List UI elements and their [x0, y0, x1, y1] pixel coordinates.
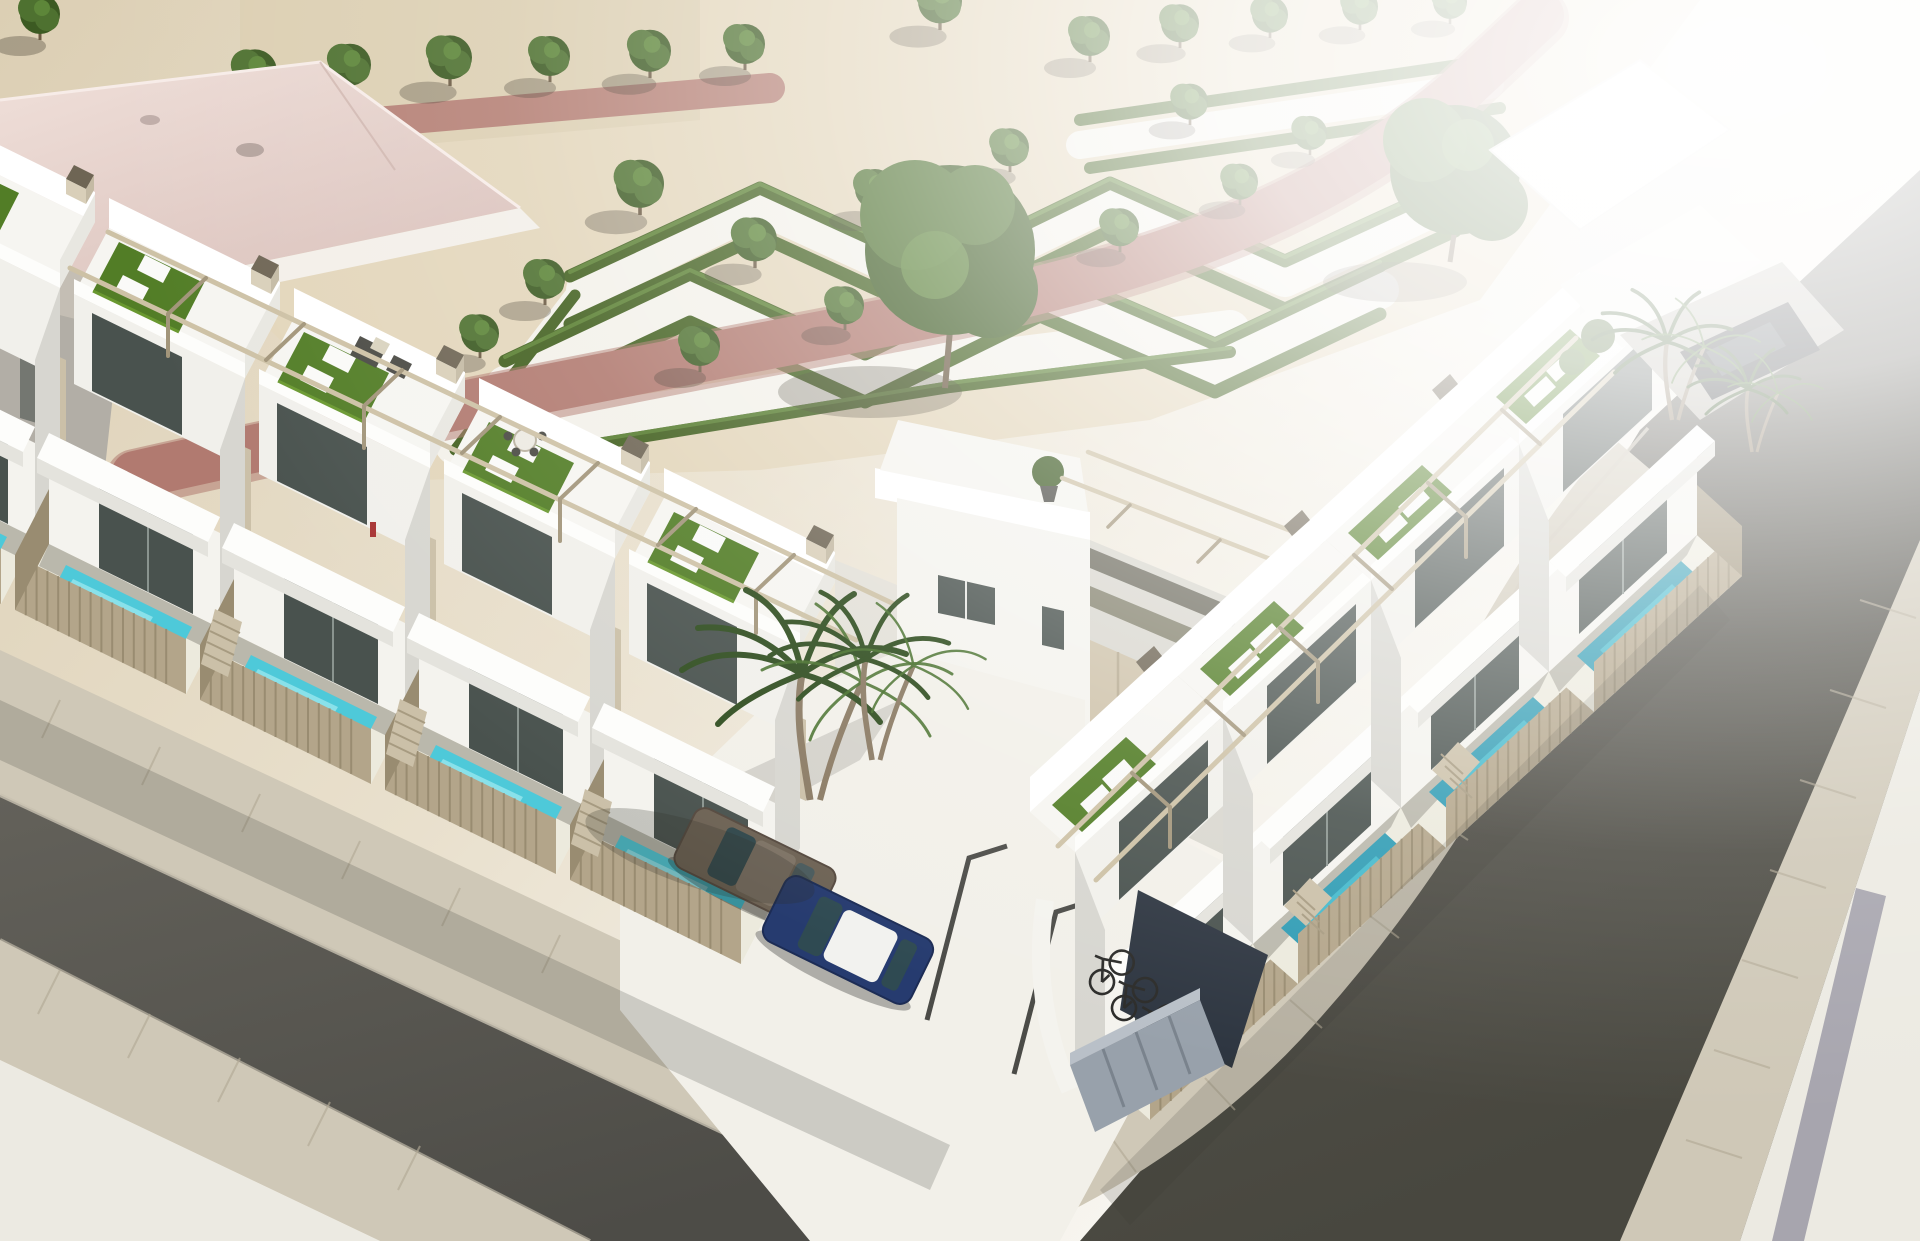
render-stage	[0, 0, 1920, 1241]
aerial-render	[0, 0, 1920, 1241]
sun-glare-overlay	[0, 0, 1920, 1241]
